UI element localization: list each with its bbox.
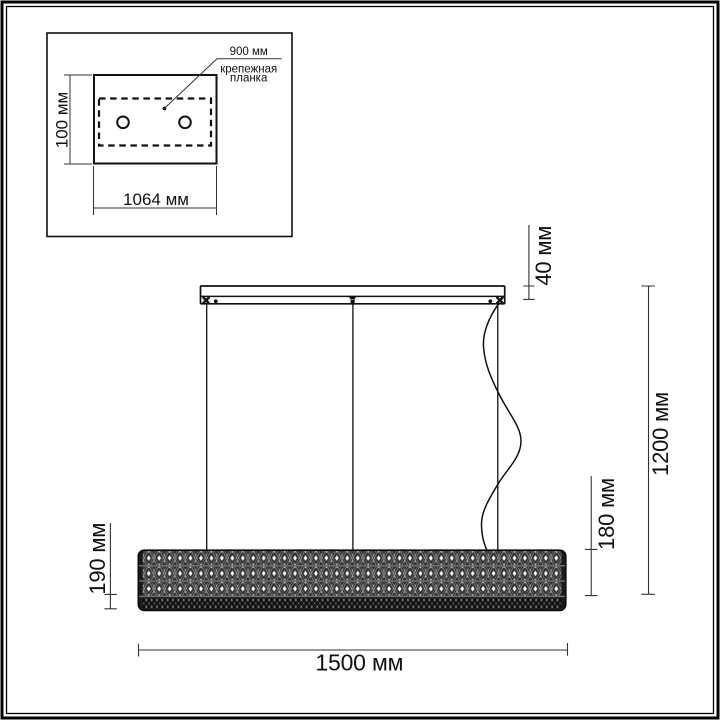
svg-text:40 мм: 40 мм	[531, 226, 556, 286]
svg-text:1200 мм: 1200 мм	[648, 392, 673, 476]
svg-text:1064 мм: 1064 мм	[123, 190, 189, 209]
svg-text:180 мм: 180 мм	[594, 478, 619, 550]
svg-text:900 мм: 900 мм	[230, 46, 268, 58]
svg-text:1500 мм: 1500 мм	[315, 650, 403, 676]
svg-text:190 мм: 190 мм	[85, 523, 110, 595]
svg-text:планка: планка	[230, 73, 268, 85]
svg-text:100 мм: 100 мм	[53, 92, 72, 148]
